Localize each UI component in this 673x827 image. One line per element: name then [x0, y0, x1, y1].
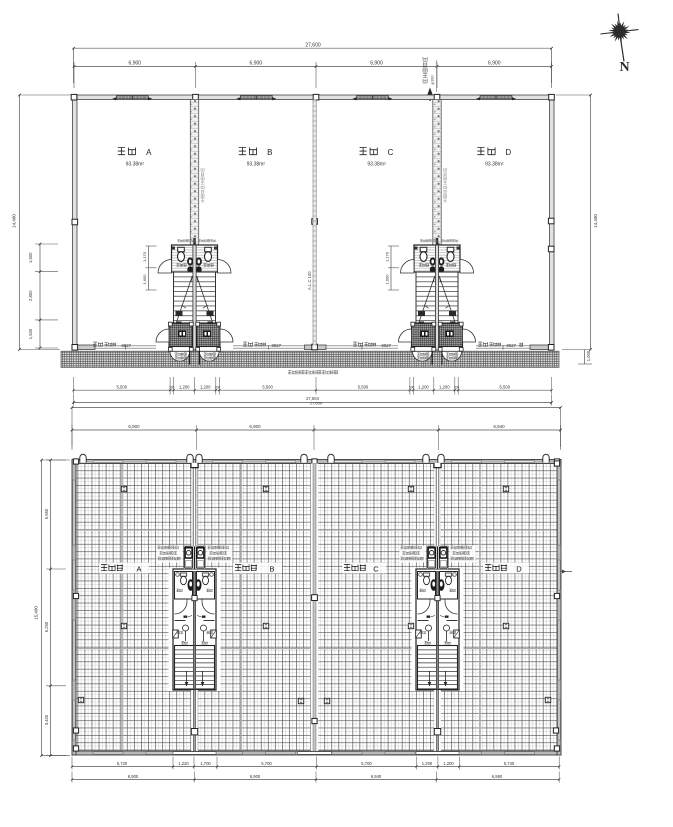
svg-text:6,940: 6,940: [371, 774, 382, 779]
svg-text:93.38m²: 93.38m²: [485, 162, 504, 168]
svg-text:1,700: 1,700: [200, 761, 211, 766]
svg-text:5,700: 5,700: [361, 761, 372, 766]
svg-text:D: D: [505, 148, 511, 157]
svg-text:6,900: 6,900: [250, 774, 261, 779]
svg-text:2,800: 2,800: [28, 290, 33, 301]
svg-text:200: 200: [409, 386, 415, 390]
svg-text:6,250: 6,250: [44, 621, 49, 632]
svg-text:C: C: [388, 148, 394, 157]
svg-text:1,600: 1,600: [385, 274, 390, 285]
svg-text:5,700: 5,700: [261, 761, 272, 766]
svg-text:5,950: 5,950: [44, 508, 49, 519]
svg-text:1,170: 1,170: [142, 251, 147, 262]
svg-text:93.38m²: 93.38m²: [247, 162, 266, 168]
svg-text:1,220: 1,220: [178, 761, 189, 766]
svg-text:1,170: 1,170: [385, 251, 390, 262]
svg-text:1,200: 1,200: [179, 385, 190, 390]
svg-text:6,960: 6,960: [492, 774, 503, 779]
svg-text:B: B: [267, 148, 272, 157]
svg-text:14,400: 14,400: [593, 214, 598, 228]
svg-text:27,600: 27,600: [305, 42, 321, 48]
svg-text:27,600: 27,600: [310, 401, 323, 406]
svg-text:15,400: 15,400: [34, 606, 39, 620]
svg-text:1,000: 1,000: [586, 350, 591, 361]
svg-text:5,500: 5,500: [500, 385, 511, 390]
svg-text:-3027: -3027: [270, 343, 282, 348]
svg-text:C: C: [373, 565, 379, 574]
svg-text:6,900: 6,900: [129, 60, 142, 66]
svg-text:93.38m²: 93.38m²: [367, 162, 386, 168]
svg-text:6,900: 6,900: [128, 424, 140, 429]
svg-text:1,500: 1,500: [28, 328, 33, 339]
svg-text:6,900: 6,900: [370, 60, 383, 66]
svg-text:A: A: [136, 565, 141, 574]
svg-text:1,200: 1,200: [439, 385, 450, 390]
svg-text:1,600: 1,600: [142, 274, 147, 285]
svg-text:A: A: [146, 148, 152, 157]
svg-text:5,740: 5,740: [504, 761, 515, 766]
svg-text:φ100: φ100: [430, 75, 435, 85]
svg-text:93.38m²: 93.38m²: [126, 162, 145, 168]
svg-text:6,900: 6,900: [128, 774, 139, 779]
svg-text:3,400: 3,400: [44, 714, 49, 725]
svg-text:6,900: 6,900: [249, 424, 261, 429]
svg-text:5,500: 5,500: [117, 385, 128, 390]
svg-text:200: 200: [215, 386, 221, 390]
svg-text:A.L.C 100: A.L.C 100: [307, 271, 312, 290]
svg-text:1,200: 1,200: [200, 385, 211, 390]
svg-text:1,200: 1,200: [418, 385, 429, 390]
svg-text:5,500: 5,500: [262, 385, 273, 390]
svg-text:6,900: 6,900: [250, 60, 263, 66]
svg-text:-3027: -3027: [505, 343, 517, 348]
svg-text:B: B: [269, 565, 274, 574]
svg-text:1,600: 1,600: [28, 252, 33, 263]
svg-text:-3027: -3027: [120, 343, 132, 348]
svg-text:6,900: 6,900: [488, 60, 501, 66]
svg-text:1,200: 1,200: [443, 761, 454, 766]
svg-text:14,400: 14,400: [12, 214, 17, 228]
svg-text:-3027: -3027: [380, 343, 392, 348]
svg-text:6,940: 6,940: [493, 424, 505, 429]
svg-text:N: N: [619, 60, 629, 75]
svg-text:200: 200: [169, 386, 175, 390]
svg-text:1,200: 1,200: [422, 761, 433, 766]
svg-text:D: D: [516, 565, 522, 574]
svg-text:5,500: 5,500: [358, 385, 369, 390]
svg-text:200: 200: [454, 386, 460, 390]
svg-text:5,720: 5,720: [117, 761, 128, 766]
